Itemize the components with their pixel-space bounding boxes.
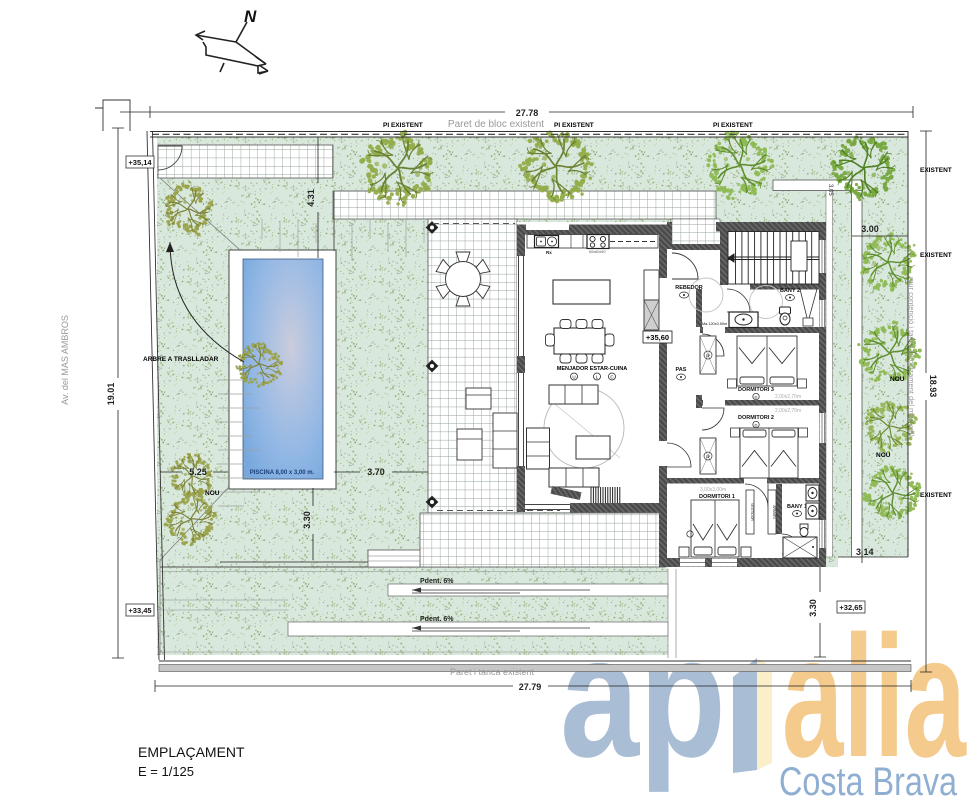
svg-text:Pdent. 6%: Pdent. 6% [420, 578, 454, 585]
svg-text:N: N [244, 7, 257, 26]
svg-text:+32,65: +32,65 [839, 603, 862, 612]
svg-text:BANY 1: BANY 1 [787, 504, 807, 510]
svg-text:Costa Brava: Costa Brava [779, 760, 958, 800]
svg-text:PI EXISTENT: PI EXISTENT [383, 122, 423, 129]
svg-text:18.93: 18.93 [928, 375, 938, 398]
svg-text:1P: 1P [706, 455, 711, 459]
svg-text:3.70: 3.70 [367, 467, 385, 477]
svg-text:4.31: 4.31 [306, 189, 316, 207]
svg-text:2,00x2,70m: 2,00x2,70m [775, 394, 801, 400]
svg-text:DORMITORI 3: DORMITORI 3 [738, 387, 774, 393]
svg-text:REBEDOR: REBEDOR [675, 285, 703, 291]
svg-text:mur contenció i tanca (recolza: mur contenció i tanca (recolzament del m… [907, 277, 916, 437]
svg-text:D: D [755, 422, 758, 427]
svg-text:NOU: NOU [890, 376, 905, 383]
svg-text:27.79: 27.79 [519, 682, 542, 692]
svg-text:5.25: 5.25 [189, 467, 207, 477]
svg-text:Av. del MAS AMBROS: Av. del MAS AMBROS [60, 315, 70, 405]
svg-text:1P: 1P [706, 354, 711, 358]
svg-text:EXISTENT: EXISTENT [920, 492, 952, 499]
svg-text:EMPLAÇAMENT: EMPLAÇAMENT [138, 744, 245, 760]
svg-text:Pdent. 6%: Pdent. 6% [420, 616, 454, 623]
svg-text:BANY 2: BANY 2 [780, 288, 800, 294]
svg-text:Paret i tanca existent: Paret i tanca existent [450, 667, 535, 677]
svg-text:U: U [572, 375, 575, 380]
svg-text:ARBRE A TRASLLADAR: ARBRE A TRASLLADAR [143, 356, 219, 363]
svg-text:3.00: 3.00 [861, 224, 879, 234]
svg-text:NOU: NOU [205, 490, 220, 497]
svg-text:PISCINA 8,00 x 3,00 m.: PISCINA 8,00 x 3,00 m. [250, 470, 315, 476]
svg-text:+35,60: +35,60 [646, 333, 669, 342]
svg-text:27.78: 27.78 [516, 108, 539, 118]
svg-text:3.30: 3.30 [302, 511, 312, 529]
svg-text:2,00x2,70m: 2,00x2,70m [775, 408, 801, 414]
svg-text:PAS: PAS [676, 367, 687, 373]
svg-text:3.05: 3.05 [827, 184, 833, 196]
svg-text:MENJADOR ESTAR-CUINA: MENJADOR ESTAR-CUINA [557, 366, 628, 372]
svg-text:Paret de bloc existent: Paret de bloc existent [448, 119, 544, 130]
svg-text:3 14: 3 14 [856, 547, 874, 557]
svg-text:60x60x90: 60x60x90 [589, 250, 605, 254]
svg-text:PI EXISTENT: PI EXISTENT [713, 122, 753, 129]
svg-text:PI EXISTENT: PI EXISTENT [554, 122, 594, 129]
svg-text:DORMITORI 2: DORMITORI 2 [738, 415, 774, 421]
svg-text:ap: ap [560, 599, 726, 793]
svg-text:NOU: NOU [876, 452, 891, 459]
svg-text:Ma.120x0.50m: Ma.120x0.50m [702, 322, 727, 326]
svg-text:DORMITORI 1: DORMITORI 1 [699, 494, 735, 500]
svg-text:EXISTENT: EXISTENT [920, 167, 952, 174]
svg-text:+33,45: +33,45 [128, 606, 151, 615]
svg-text:+35,14: +35,14 [128, 158, 152, 167]
svg-text:Rx: Rx [546, 250, 552, 255]
svg-text:D: D [755, 394, 758, 399]
svg-text:VESTIDOR: VESTIDOR [750, 503, 754, 521]
svg-text:19.01: 19.01 [106, 383, 116, 406]
svg-text:3.30: 3.30 [808, 599, 818, 617]
svg-text:3,00x3,00m: 3,00x3,00m [700, 487, 726, 493]
svg-text:ARMARI: ARMARI [772, 505, 776, 519]
svg-text:EXISTENT: EXISTENT [920, 252, 952, 259]
svg-text:E = 1/125: E = 1/125 [138, 764, 194, 779]
